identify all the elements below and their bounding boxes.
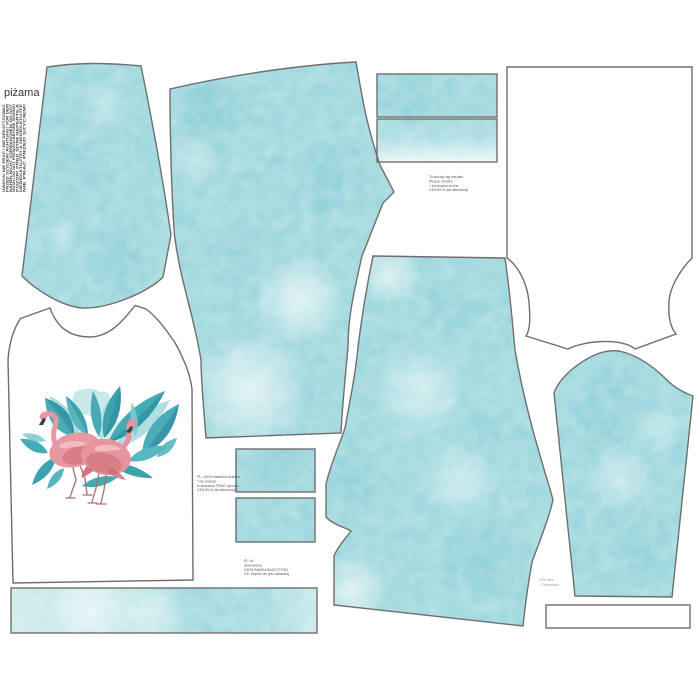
svg-text:© dresówka: © dresówka (541, 583, 559, 587)
svg-text:CE/UKCA dla niemowląt: CE/UKCA dla niemowląt (197, 488, 236, 492)
svg-text:* nie suszyć: * nie suszyć (197, 479, 216, 483)
svg-text:+ dimension to the: + dimension to the (429, 184, 458, 188)
svg-text:drukowana: drukowana (244, 563, 262, 567)
svg-text:NIE PRAĆ PRZED SZYCIEM!: NIE PRAĆ PRZED SZYCIEM! (21, 104, 26, 192)
svg-text:12% dres: 12% dres (539, 578, 554, 582)
svg-text:CE/UKCA dla niemowląt: CE/UKCA dla niemowląt (429, 188, 468, 192)
svg-text:CE: Wyrób nie jest zabawką: CE: Wyrób nie jest zabawką (244, 572, 289, 576)
svg-text:PL: tk.: PL: tk. (244, 559, 254, 563)
svg-text:piżama: piżama (4, 87, 40, 99)
svg-text:PL: 100% bawełna dziecko: PL: 100% bawełna dziecko (197, 475, 240, 479)
svg-text:w suszarce PRAĆ ręcznie: w suszarce PRAĆ ręcznie (197, 483, 239, 488)
svg-text:Tu dociąć wg wzrostu: Tu dociąć wg wzrostu (429, 175, 463, 179)
svg-text:100% BAWEŁNA/COTTON: 100% BAWEŁNA/COTTON (244, 568, 288, 572)
svg-text:Please shorten: Please shorten (429, 179, 453, 183)
